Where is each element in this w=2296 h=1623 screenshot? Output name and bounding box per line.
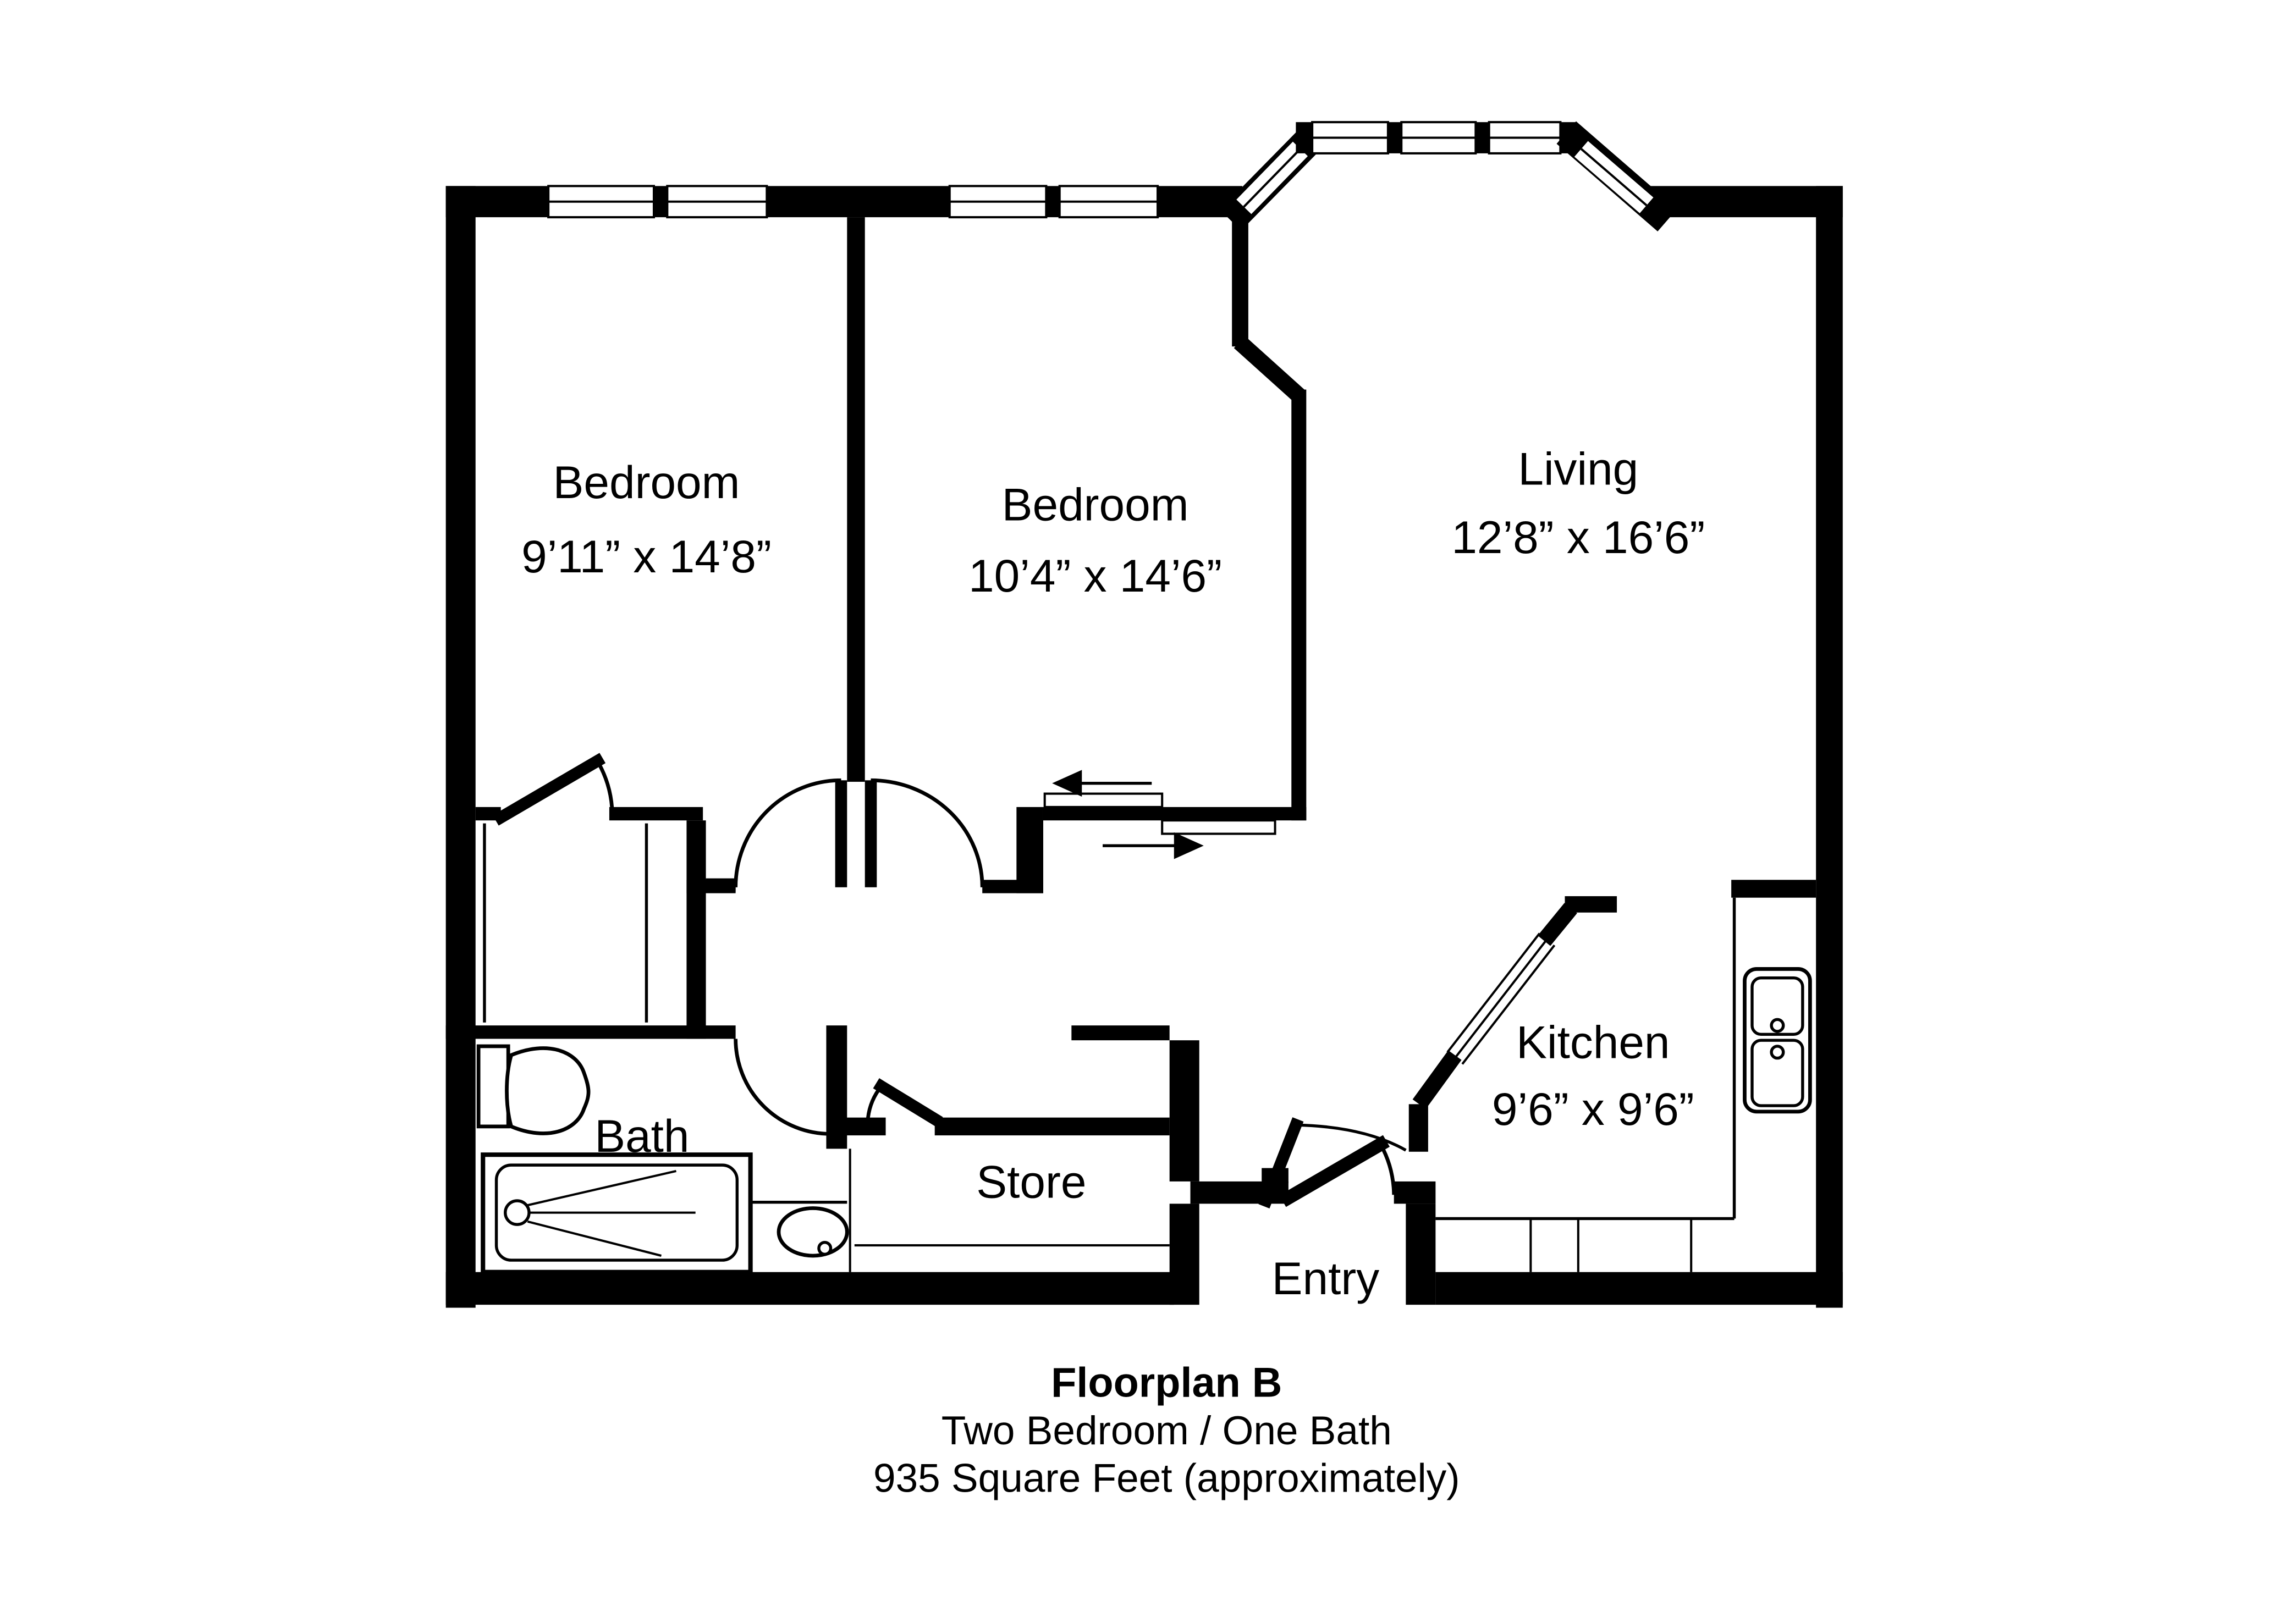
door-swing-arc <box>736 1039 831 1134</box>
caption: Floorplan B Two Bedroom / One Bath 935 S… <box>873 1360 1460 1501</box>
toilet-tank <box>478 1046 508 1127</box>
kitchen-stub-wall <box>1409 1104 1428 1151</box>
bottom-wall-right <box>1435 1272 1842 1305</box>
bath-sink-icon <box>751 1149 850 1272</box>
floorplan-canvas: Bedroom 9’11” x 14’8” Bedroom 10’4” x 14… <box>0 0 2296 1623</box>
door-leaf <box>1289 1144 1381 1197</box>
window-mullion <box>1388 122 1401 153</box>
bedroom1-door <box>736 780 847 887</box>
door-swing-arc <box>871 780 983 887</box>
bay-corner <box>1296 122 1312 153</box>
top-wall-right-segment <box>1648 186 1843 217</box>
hall-south-wall <box>1071 1025 1169 1040</box>
kitchen-dims: 9’6” x 9’6” <box>1492 1083 1694 1135</box>
sliding-door-panel <box>1162 820 1275 833</box>
store-door <box>868 1086 935 1119</box>
kitchen-north-wall <box>1731 880 1816 897</box>
hall-stub-wall <box>706 879 736 892</box>
sink-drain <box>1771 1019 1783 1031</box>
door-swing-arc <box>736 780 841 887</box>
bedroom2-chamfer-wall <box>1240 342 1299 395</box>
bedroom-divider-wall <box>847 217 865 782</box>
bedroom2-east-wall-upper <box>1232 217 1248 346</box>
store-north-wall <box>935 1118 1170 1135</box>
door-leaf <box>835 780 847 887</box>
door-leaf <box>881 1086 934 1119</box>
floorplan-page: Bedroom 9’11” x 14’8” Bedroom 10’4” x 14… <box>0 0 2296 1623</box>
kitchen-diagonal-stub <box>1544 908 1571 941</box>
right-wall <box>1816 186 1843 1307</box>
bay-window <box>1230 122 1667 220</box>
store-east-wall <box>1170 1040 1199 1182</box>
sink-basin <box>779 1208 847 1256</box>
entry-west-wall <box>1170 1204 1199 1305</box>
store-label: Store <box>976 1156 1086 1208</box>
shower-icon <box>483 1155 750 1272</box>
bath-label: Bath <box>594 1110 689 1162</box>
top-wall-segment <box>767 186 949 217</box>
slide-right-arrow-icon <box>1103 832 1204 859</box>
store-north-wall <box>841 1118 885 1135</box>
closet-east-wall <box>686 820 706 1039</box>
window-mullion <box>1046 186 1059 217</box>
entry-east-wall <box>1406 1204 1435 1305</box>
kitchen-sink-icon <box>1744 969 1810 1111</box>
entry-door <box>1289 1144 1394 1197</box>
bedroom2-label: Bedroom <box>1002 478 1189 530</box>
bedroom2-door <box>865 780 982 887</box>
kitchen-diagonal-stub <box>1419 1055 1455 1104</box>
toilet-icon <box>478 1046 588 1134</box>
bath-north-wall <box>446 1025 736 1039</box>
door-swing-arc <box>868 1086 881 1119</box>
sink-drain <box>1771 1046 1783 1058</box>
door-swing-arc <box>597 761 612 813</box>
bedroom2-dims: 10’4” x 14’6” <box>968 550 1222 601</box>
bedroom2-east-wall-lower <box>1291 390 1306 821</box>
top-wall-segment <box>446 186 548 217</box>
sliding-door-panel <box>1045 794 1162 807</box>
window-mullion <box>654 186 667 217</box>
left-wall <box>446 186 476 1307</box>
bedroom1-closet-door <box>501 761 613 818</box>
window-mullion <box>1475 122 1489 153</box>
entry-step-wall <box>1394 1182 1436 1204</box>
toilet-bowl <box>506 1048 588 1134</box>
bedroom1-south-wall <box>609 807 703 820</box>
bottom-wall-left <box>446 1272 1174 1305</box>
living-label: Living <box>1518 443 1638 495</box>
sink-drain <box>819 1243 831 1255</box>
bedroom1-label: Bedroom <box>553 456 740 508</box>
caption-subtitle: Two Bedroom / One Bath <box>941 1409 1392 1453</box>
shower-drain <box>505 1201 529 1224</box>
door-leaf <box>865 780 877 887</box>
living-dims: 12’8” x 16’6” <box>1451 511 1705 563</box>
bedroom1-dims: 9’11” x 14’8” <box>521 531 772 582</box>
arrow-head <box>1174 832 1204 859</box>
entry-label: Entry <box>1272 1252 1380 1304</box>
door-swing-arc <box>1380 1144 1394 1195</box>
caption-area: 935 Square Feet (approximately) <box>873 1456 1460 1501</box>
bedroom2-south-wall <box>1043 807 1306 820</box>
wall-jog <box>1016 807 1043 893</box>
door-leaf <box>501 761 598 818</box>
kitchen-label: Kitchen <box>1516 1017 1670 1068</box>
caption-title: Floorplan B <box>1051 1360 1282 1406</box>
bedroom1-closet <box>484 824 647 1023</box>
bath-door <box>736 1039 831 1134</box>
